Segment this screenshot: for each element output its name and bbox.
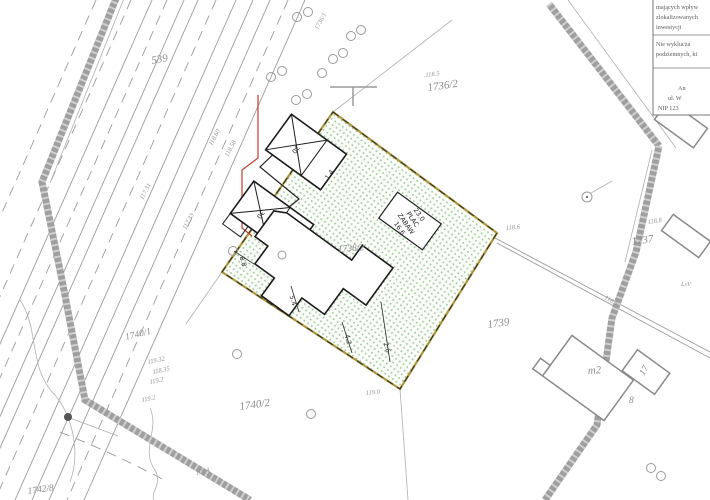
- stamp-line-7: ul. W: [668, 95, 682, 102]
- tree-icon: [339, 49, 348, 58]
- label-parcel-539: 539: [150, 52, 169, 67]
- tree-icon: [657, 472, 666, 481]
- label-elev-119-2b: 119.2: [141, 394, 157, 404]
- benchmark-dot: [586, 196, 588, 198]
- label-elev-119-0: 119.0: [365, 388, 381, 397]
- pole-t-icon: [330, 87, 377, 106]
- label-elev-118-6: 118.6: [505, 223, 521, 232]
- tree-icon: [357, 26, 366, 35]
- east-structures: [655, 100, 710, 257]
- stamp-line-3: inwestycji: [656, 24, 682, 31]
- tree-icon: [329, 55, 338, 64]
- label-elev-117-31: 117.31: [139, 182, 153, 201]
- label-elev-119-2a: 119.2: [149, 376, 165, 386]
- label-parcel-1740-2: 1740/2: [239, 397, 271, 413]
- label-elev-118-8: 118.8: [647, 217, 663, 226]
- tree-icon: [318, 69, 327, 78]
- stamp-line-8: NIP 123: [658, 105, 679, 112]
- label-elev-118-35: 118.35: [152, 365, 171, 376]
- farm-track: [495, 238, 710, 358]
- stamp-line-6: An: [678, 85, 686, 92]
- tree-icon: [292, 96, 301, 105]
- label-parcel-1742-8: 1742/8: [27, 483, 55, 497]
- stamp-line-4: Nie wyklucza: [656, 41, 690, 48]
- stamp-line-1: mających wpływ: [656, 4, 699, 11]
- stamp-line-2: zlokalizowanych: [656, 14, 699, 21]
- label-parcel-1737: 1737: [631, 233, 655, 248]
- label-parcel-1739: 1739: [487, 316, 511, 331]
- label-elev-117-33: 117.33: [182, 212, 197, 231]
- label-house-m2: m2: [587, 364, 602, 377]
- tree-icon: [647, 464, 656, 473]
- stamp-box: mających wpływ zlokalizowanych inwestycj…: [653, 0, 710, 115]
- stamp-line-5: podziemnych, kt: [656, 51, 698, 58]
- label-parcel-1736-2: 1736/2: [427, 78, 459, 94]
- label-parcel-1736-1: 1736/1: [314, 12, 329, 31]
- label-forest-lsv: LsV: [680, 281, 692, 288]
- tree-icon: [347, 32, 356, 41]
- label-elev-119-32: 119.32: [147, 355, 166, 366]
- map-svg: 30 1.4 30 9 8.8 5.4 4.2 2.6 23.0 PLAC ZA…: [0, 0, 710, 500]
- tree-icon: [304, 8, 313, 17]
- tree-icon: [303, 90, 312, 99]
- tree-icon: [278, 67, 287, 76]
- manhole-icon: [64, 413, 72, 421]
- cadastral-map: 30 1.4 30 9 8.8 5.4 4.2 2.6 23.0 PLAC ZA…: [0, 0, 710, 500]
- label-parcel-1740-1: 1740/1: [124, 327, 152, 343]
- tree-icon: [233, 350, 242, 359]
- tree-icon: [307, 410, 316, 419]
- label-house-8: 8: [629, 396, 634, 406]
- label-elev-118-5-top: .118.5: [423, 70, 440, 79]
- label-parcel-1738-2: 1738/2: [338, 243, 365, 255]
